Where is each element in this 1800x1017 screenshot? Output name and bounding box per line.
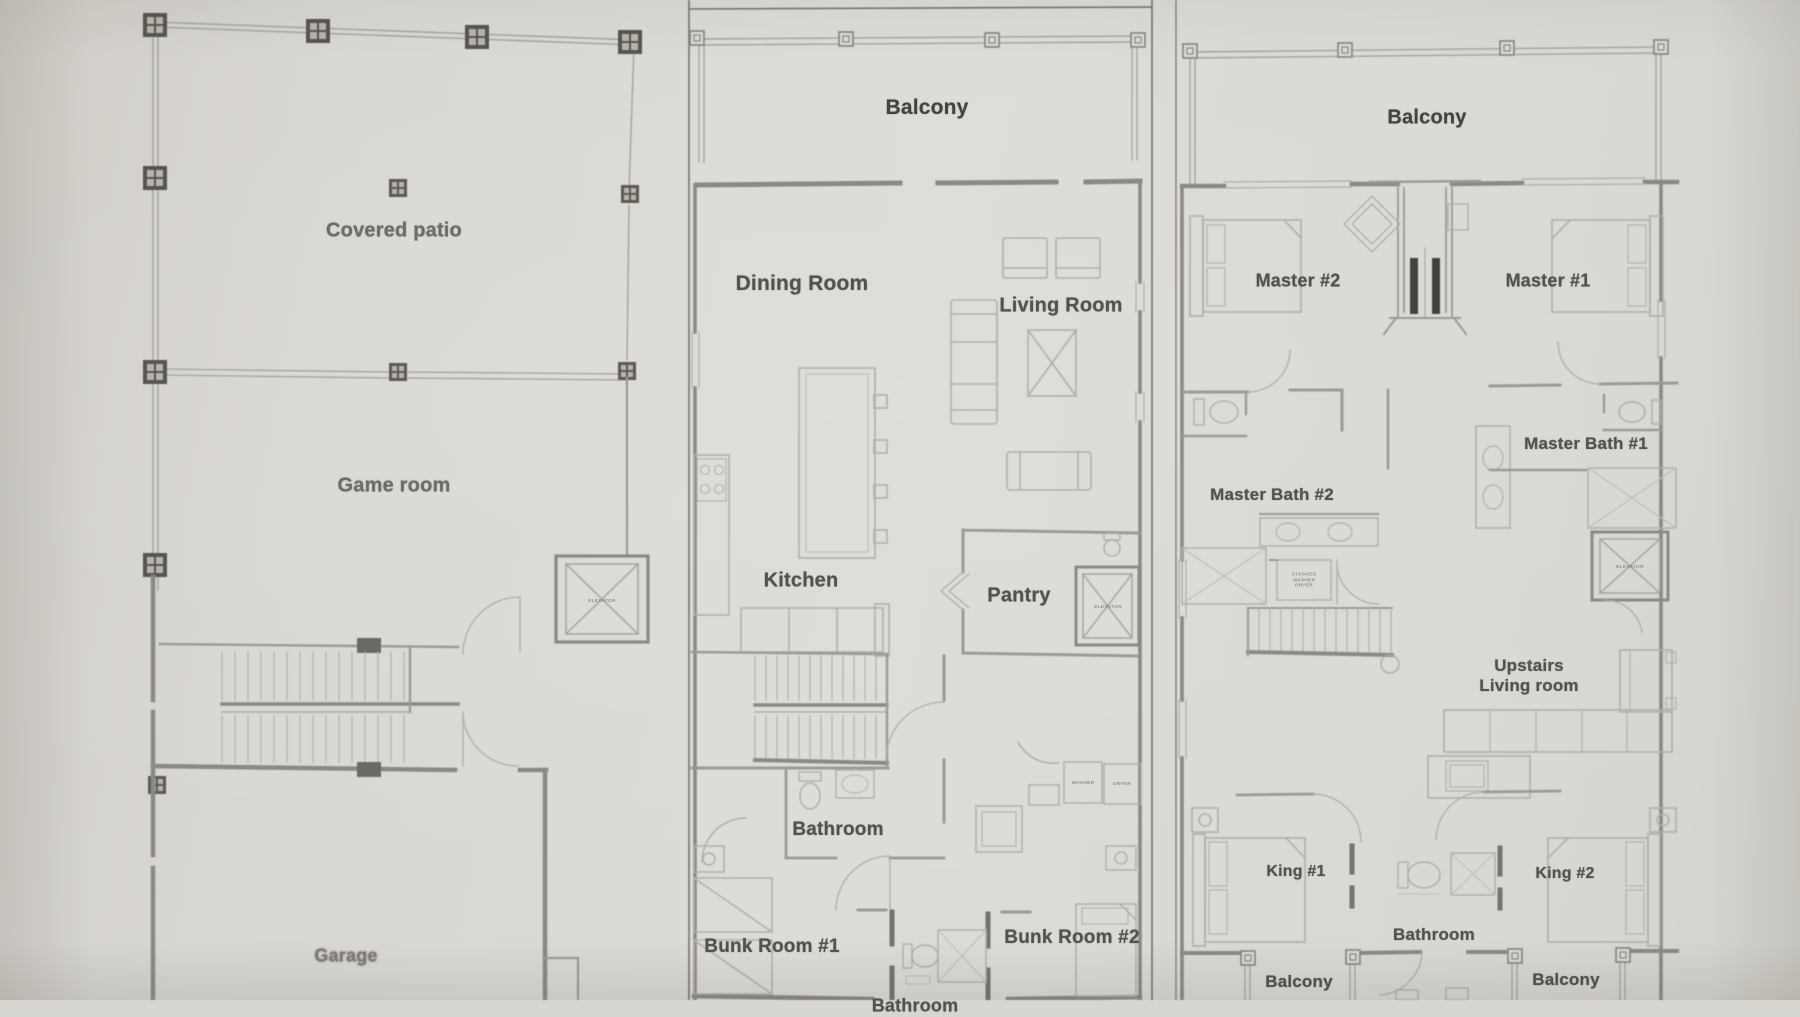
room-label-king-1: King #1 xyxy=(1266,863,1325,881)
tiny-label-washer: WASHER xyxy=(1072,780,1095,786)
room-label-bunk-room-2: Bunk Room #2 xyxy=(1004,927,1139,949)
tiny-label-stacked-washer-dryer: STACKED WASHER DRYER xyxy=(1292,572,1317,589)
room-label-game-room: Game room xyxy=(338,475,451,498)
room-label-balcony-lower-right: Balcony xyxy=(1532,970,1600,990)
room-label-covered-patio: Covered patio xyxy=(326,220,462,243)
floorplan-photo: Covered patio Game room Garage Balcony D… xyxy=(0,0,1800,1000)
room-label-master-2: Master #2 xyxy=(1256,271,1341,292)
room-label-master-1: Master #1 xyxy=(1506,271,1591,292)
room-label-living-room: Living Room xyxy=(999,295,1122,318)
room-label-bathroom-partial: Bathroom xyxy=(872,996,959,1017)
room-label-balcony-upper: Balcony xyxy=(1387,107,1466,130)
room-labels: Covered patio Game room Garage Balcony D… xyxy=(0,0,1800,1000)
room-label-bathroom-main: Bathroom xyxy=(792,819,883,841)
room-label-pantry: Pantry xyxy=(987,585,1050,608)
tiny-label-elevator-ground: ELEVATOR xyxy=(588,598,616,604)
room-label-king-2: King #2 xyxy=(1535,865,1594,883)
room-label-kitchen: Kitchen xyxy=(764,570,839,593)
room-label-balcony-lower-left: Balcony xyxy=(1265,972,1333,992)
tiny-label-elevator-main: ELEVATOR xyxy=(1094,604,1122,610)
room-label-master-bath-2: Master Bath #2 xyxy=(1210,485,1334,505)
room-label-master-bath-1: Master Bath #1 xyxy=(1524,434,1648,454)
room-label-dining-room: Dining Room xyxy=(736,272,869,296)
room-label-garage: Garage xyxy=(314,946,377,967)
room-label-upstairs-living: Upstairs Living room xyxy=(1467,656,1592,696)
tiny-label-elevator-upper: ELEVATOR xyxy=(1616,564,1644,570)
tiny-label-dryer: DRYER xyxy=(1113,781,1131,787)
room-label-bunk-room-1: Bunk Room #1 xyxy=(704,936,839,958)
room-label-bathroom-upper: Bathroom xyxy=(1393,925,1475,945)
room-label-balcony-main: Balcony xyxy=(885,96,968,120)
